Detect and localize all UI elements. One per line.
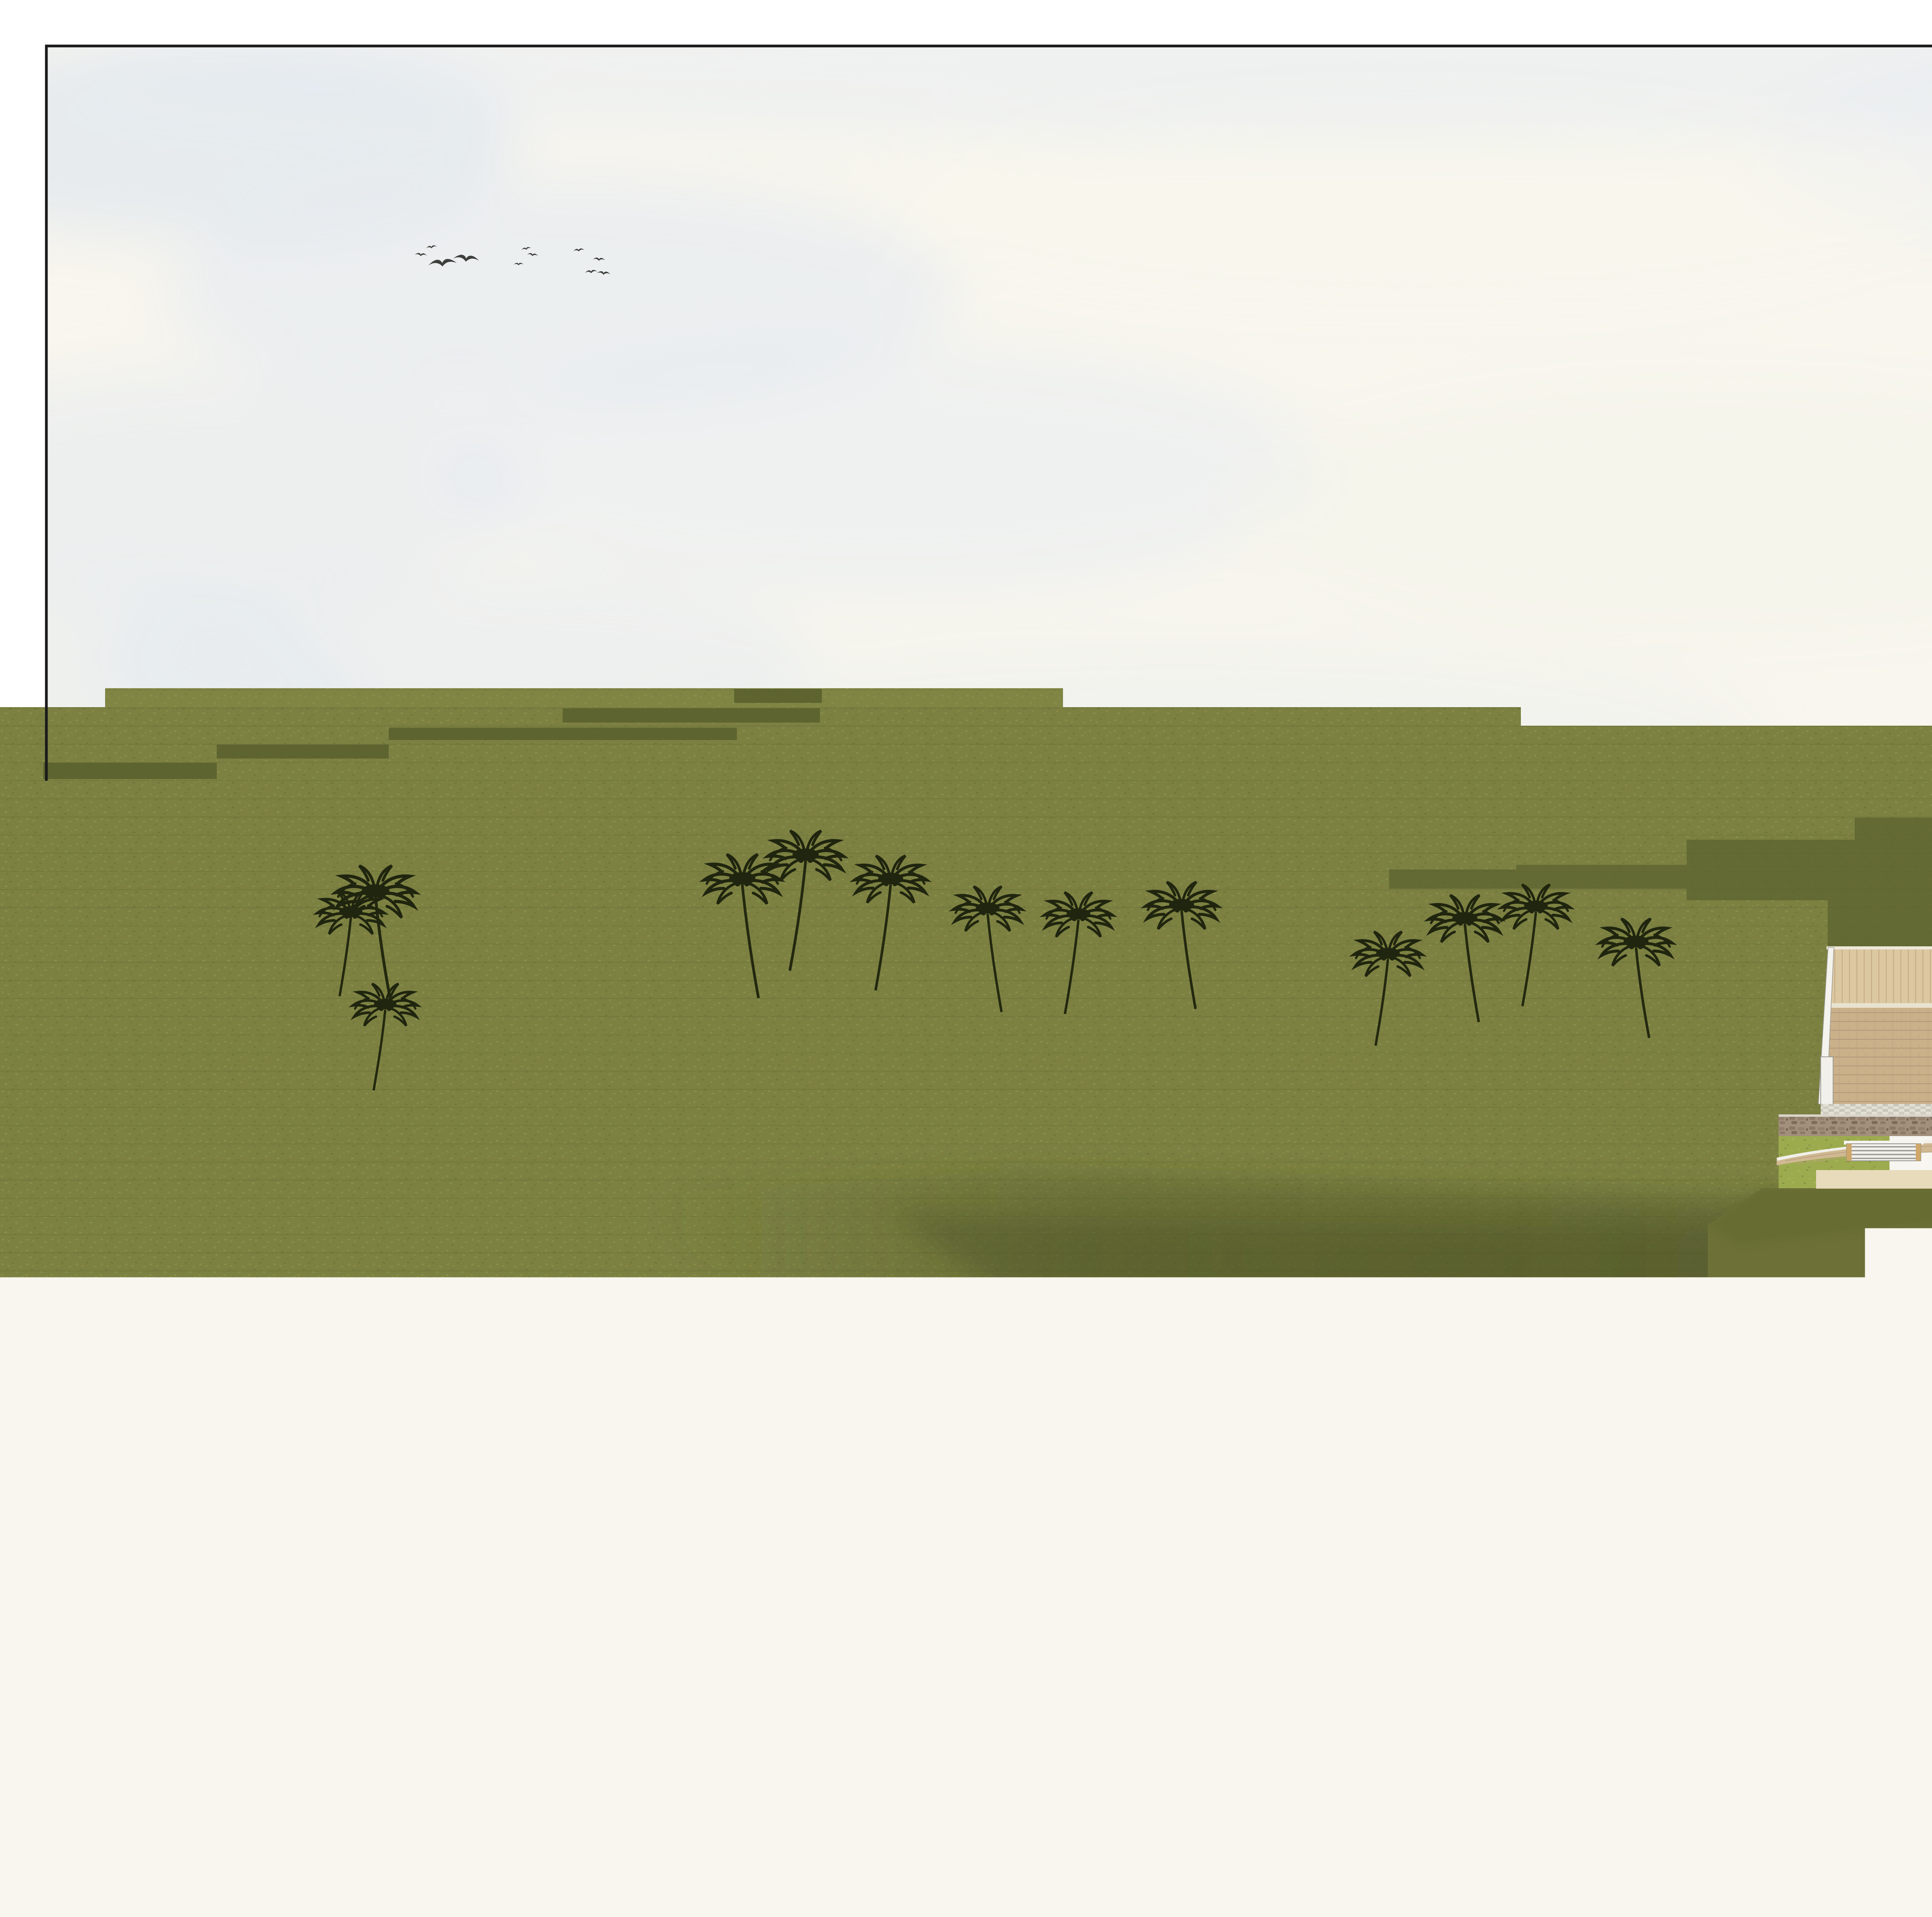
svg-text:PROGRAM STUDI ARSITEKTUR: PROGRAM STUDI ARSITEKTUR <box>1608 1811 1866 1830</box>
svg-text:JUDUL GAMBAR: JUDUL GAMBAR <box>1877 1763 1932 1775</box>
svg-text:JUDUL TUGAS: JUDUL TUGAS <box>1877 1692 1932 1704</box>
svg-text:FAKULTAS TEKNIK SIPIL DAN PERE: FAKULTAS TEKNIK SIPIL DAN PERENCANAAN <box>1598 1830 1876 1844</box>
svg-text:TAMPAK SAMPING: TAMPAK SAMPING <box>1913 1805 1932 1842</box>
svg-text:TANJUNG AAN LOMBOK TENGAH: TANJUNG AAN LOMBOK TENGAH <box>1924 1735 1932 1761</box>
svg-text:SURABAYA: SURABAYA <box>1704 1856 1771 1871</box>
svg-text:UNIVERSITAS KRISTEN PETRA: UNIVERSITAS KRISTEN PETRA <box>1643 1843 1832 1857</box>
svg-text:TUGAS AKHIR - SEMESTER GENAP 2: TUGAS AKHIR - SEMESTER GENAP 2015/2016 <box>1912 1663 1932 1683</box>
